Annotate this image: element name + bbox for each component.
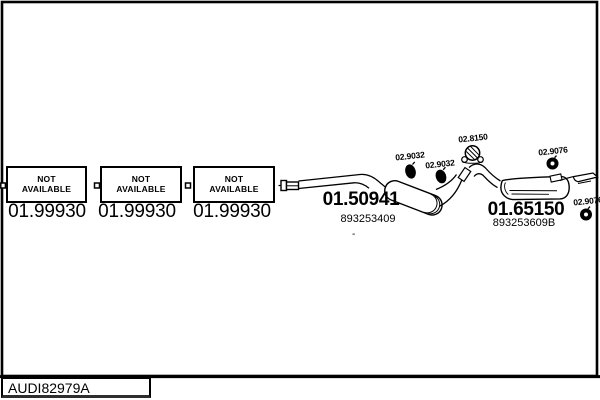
placeholder-box-3[interactable]: NOT AVAILABLE [193, 166, 275, 203]
placeholder-box-1[interactable]: NOT AVAILABLE [6, 166, 87, 203]
footer-code-box: AUDI82979A [1, 377, 151, 398]
front-silencer-oe-number: 893253409 [308, 214, 428, 225]
connector-square [1, 183, 6, 188]
placeholder-box-2-line2: AVAILABLE [116, 185, 165, 195]
connector-square [95, 183, 100, 188]
placeholder-box-2[interactable]: NOT AVAILABLE [100, 166, 182, 203]
clamp-icon-1 [404, 162, 418, 180]
clamp-icon-2 [434, 167, 448, 185]
placeholder-box-1-line2: AVAILABLE [22, 185, 71, 195]
exhaust-catalog-drawing: NOT AVAILABLE NOT AVAILABLE NOT AVAILABL… [0, 0, 600, 400]
front-pipe-drawing [299, 174, 388, 188]
rubber-hanger-icon [462, 146, 484, 164]
separator-dash: - [352, 230, 355, 240]
connector-square [186, 183, 191, 188]
ring-icon-1 [549, 156, 557, 168]
front-silencer-part-number[interactable]: 01.50941 [301, 190, 421, 209]
rear-silencer-oe-number: 893253609B [464, 218, 584, 229]
placeholder-box-3-line2: AVAILABLE [209, 185, 258, 195]
placeholder-part-number-1[interactable]: 01.99930 [4, 202, 90, 221]
flex-coupling-drawing [279, 181, 299, 191]
footer-code: AUDI82979A [8, 380, 90, 396]
placeholder-part-number-2[interactable]: 01.99930 [94, 202, 180, 221]
placeholder-part-number-3[interactable]: 01.99930 [189, 202, 275, 221]
